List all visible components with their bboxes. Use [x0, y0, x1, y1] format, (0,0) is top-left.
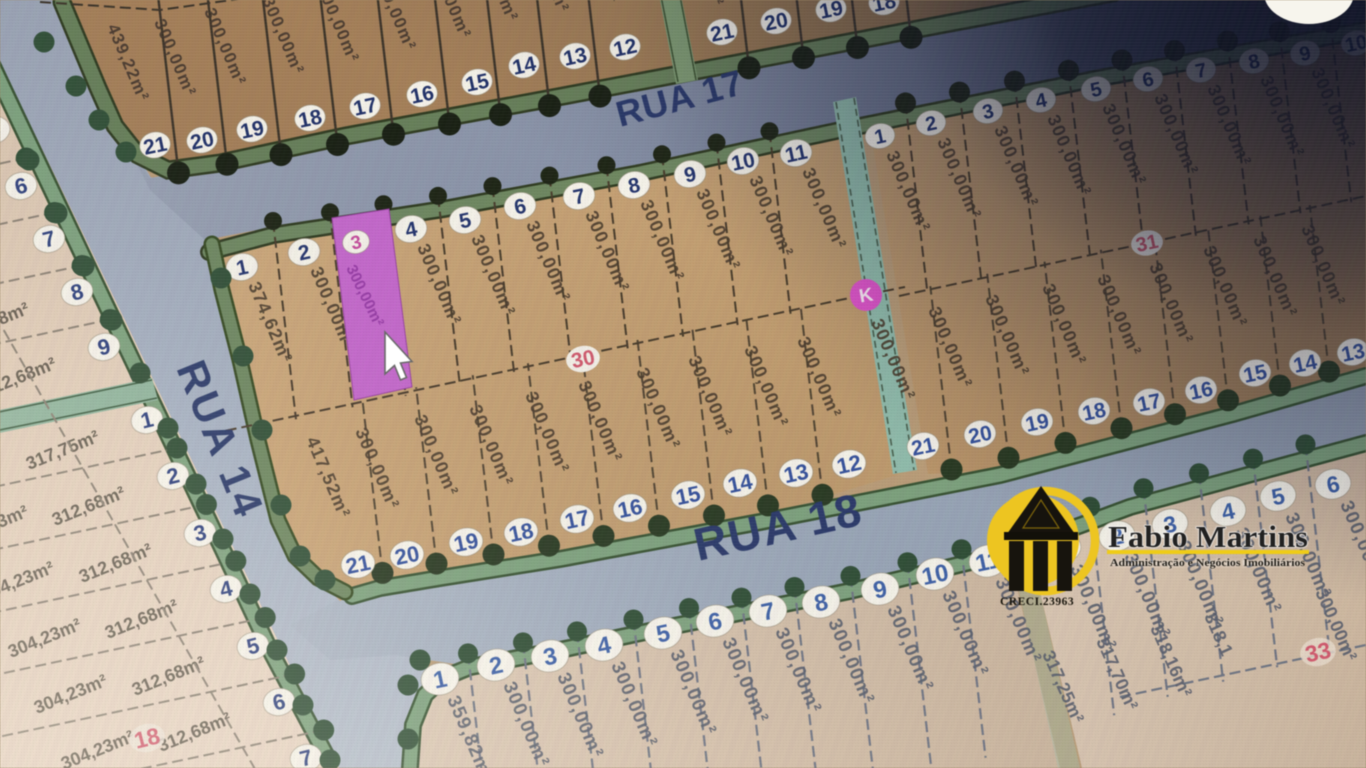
svg-text:CRECI.23963: CRECI.23963 — [1000, 596, 1074, 608]
svg-text:Fabio Martins: Fabio Martins — [1108, 519, 1308, 554]
svg-text:Administração e Negócios Imobi: Administração e Negócios Imobiliários — [1110, 558, 1305, 569]
